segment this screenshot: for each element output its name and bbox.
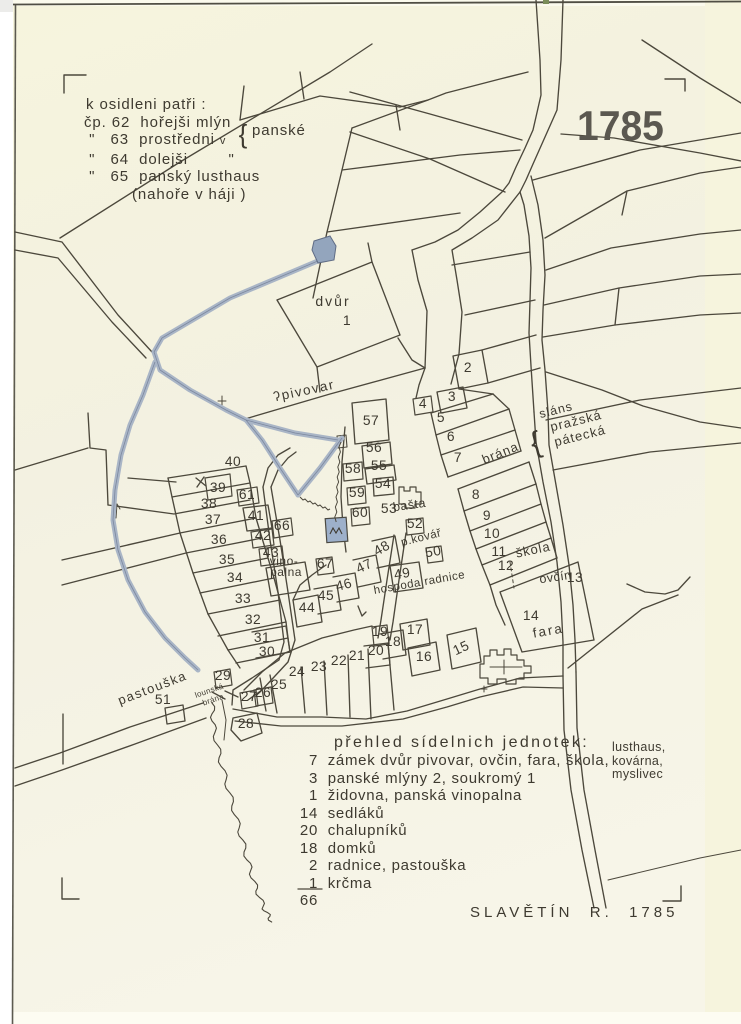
- svg-text:12: 12: [498, 558, 514, 573]
- svg-text:9: 9: [483, 508, 491, 523]
- svg-text:45: 45: [318, 588, 334, 603]
- svg-text:40: 40: [225, 454, 241, 469]
- svg-text:34: 34: [227, 570, 243, 585]
- svg-text:21: 21: [349, 648, 365, 663]
- svg-text:17: 17: [407, 622, 423, 637]
- svg-text:10: 10: [484, 526, 500, 541]
- svg-text:41: 41: [248, 508, 264, 523]
- svg-text:4: 4: [419, 396, 427, 411]
- svg-text:2: 2: [464, 360, 472, 375]
- svg-text:16: 16: [416, 649, 432, 664]
- svg-text:5: 5: [437, 410, 445, 425]
- svg-text:55: 55: [371, 458, 387, 473]
- svg-text:39: 39: [210, 480, 226, 495]
- svg-text:54: 54: [375, 476, 391, 491]
- svg-text:56: 56: [366, 440, 382, 455]
- svg-text:3: 3: [448, 389, 456, 404]
- svg-text:61: 61: [239, 487, 255, 502]
- svg-text:27: 27: [241, 689, 257, 704]
- svg-text:57: 57: [363, 413, 379, 428]
- svg-text:60: 60: [352, 505, 368, 520]
- svg-text:50: 50: [424, 543, 443, 561]
- svg-text:58: 58: [345, 461, 361, 476]
- svg-text:66: 66: [274, 518, 290, 533]
- svg-text:dvůr: dvůr: [315, 293, 350, 309]
- svg-text:6: 6: [447, 429, 455, 444]
- svg-text:26: 26: [255, 685, 271, 700]
- svg-text:67: 67: [317, 556, 333, 571]
- svg-text:7: 7: [454, 450, 462, 465]
- svg-text:38: 38: [201, 496, 217, 511]
- svg-text:19: 19: [372, 624, 388, 639]
- svg-text:23: 23: [311, 659, 327, 674]
- svg-text:59: 59: [349, 485, 365, 500]
- svg-text:22: 22: [331, 653, 347, 668]
- svg-text:31: 31: [254, 630, 270, 645]
- svg-text:33: 33: [235, 591, 251, 606]
- svg-text:24: 24: [289, 664, 305, 679]
- svg-text:palna: palna: [270, 565, 302, 579]
- svg-text:35: 35: [219, 552, 235, 567]
- svg-text:20: 20: [368, 643, 384, 658]
- svg-text:1: 1: [343, 312, 351, 328]
- svg-text:11: 11: [491, 544, 506, 559]
- svg-text:37: 37: [205, 512, 221, 527]
- svg-text:8: 8: [472, 487, 480, 502]
- svg-text:30: 30: [259, 644, 275, 659]
- svg-text:14: 14: [523, 608, 539, 623]
- svg-text:51: 51: [155, 692, 171, 707]
- svg-text:25: 25: [271, 677, 287, 692]
- svg-text:42: 42: [255, 528, 271, 543]
- svg-text:36: 36: [211, 532, 227, 547]
- svg-text:44: 44: [299, 600, 315, 615]
- svg-text:32: 32: [245, 612, 261, 627]
- svg-text:28: 28: [238, 716, 254, 731]
- svg-text:52: 52: [407, 516, 423, 531]
- svg-text:29: 29: [215, 668, 231, 683]
